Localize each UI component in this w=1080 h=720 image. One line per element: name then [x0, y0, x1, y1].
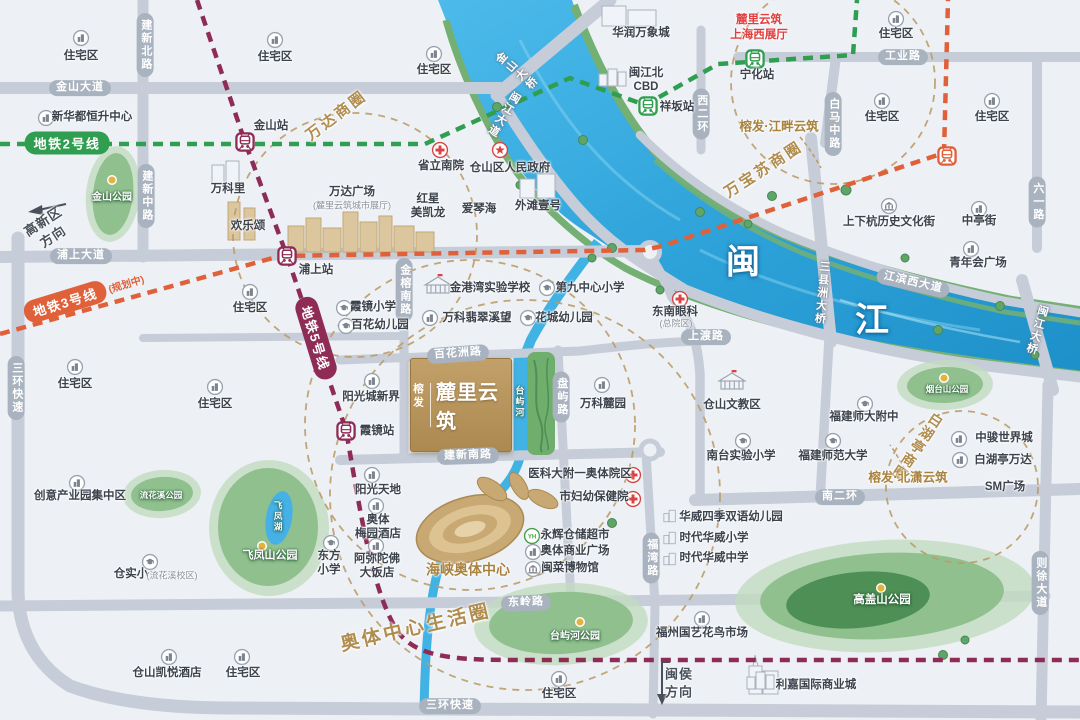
olympic-stadium — [408, 470, 560, 575]
project-name: 麓里云筑 — [436, 376, 511, 434]
project-block: 榕发 麓里云筑 — [410, 358, 512, 452]
gaoxin-direction-arrow — [28, 204, 66, 215]
map-base-layer — [0, 0, 1080, 720]
project-greenway — [527, 352, 555, 455]
wanda-plaza-buildings — [228, 202, 434, 252]
location-map: 榕发 麓里云筑 const data = JSON.parse(document… — [0, 0, 1080, 720]
minhou-direction-arrow — [657, 662, 670, 705]
project-brand: 榕发 — [411, 383, 431, 427]
metro-line-2-path — [0, 0, 857, 144]
